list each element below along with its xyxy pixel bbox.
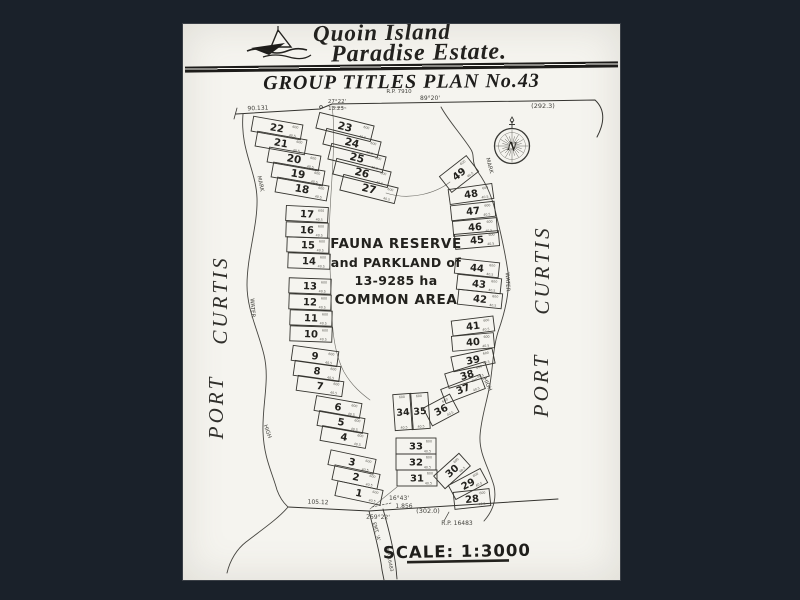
lot-number: 42 bbox=[472, 294, 487, 306]
dimension-label: 40.5 bbox=[316, 217, 323, 221]
scale-label: SCALE: 1:3000 bbox=[383, 541, 531, 563]
dimension-label: 600 bbox=[296, 140, 303, 145]
dimension-label: 40.5 bbox=[424, 466, 431, 470]
dimension-label: 600 bbox=[486, 219, 492, 224]
dimension-label: 600 bbox=[354, 418, 361, 423]
dimension-label: 600 bbox=[399, 395, 405, 399]
dimension-label: 600 bbox=[292, 125, 299, 130]
lot: 660040.5 bbox=[314, 396, 362, 419]
lot-number: 13 bbox=[303, 281, 317, 292]
dimension-label: 600 bbox=[321, 296, 327, 300]
measurement-label: 13.23 bbox=[328, 106, 344, 112]
dimension-label: 40.5 bbox=[487, 242, 494, 247]
dimension-label: 40.5 bbox=[458, 466, 466, 474]
dimension-label: 40.5 bbox=[482, 327, 490, 332]
lot-number: 3 bbox=[347, 457, 356, 469]
measurement-label: WATER bbox=[504, 272, 511, 292]
lot: 3360040.5 bbox=[396, 438, 436, 454]
lot: 460040.5 bbox=[320, 426, 368, 449]
dimension-label: 600 bbox=[321, 280, 327, 284]
dimension-label: 600 bbox=[369, 474, 376, 479]
lot: 560040.5 bbox=[317, 411, 365, 434]
lot: 4260040.5 bbox=[457, 289, 502, 309]
dimension-label: 600 bbox=[320, 255, 326, 259]
lots-layer: 160040.5260040.5360040.5460040.5560040.5… bbox=[251, 112, 503, 509]
measurement-label: 90.131 bbox=[247, 105, 268, 113]
lot-number: 7 bbox=[316, 381, 324, 393]
lot-number: 8 bbox=[313, 366, 321, 378]
lot-number: 19 bbox=[290, 167, 306, 181]
measurement-label: (292.3) bbox=[531, 102, 555, 110]
lot-number: 46 bbox=[468, 222, 483, 234]
lot: 4960040.5 bbox=[439, 156, 478, 193]
dimension-label: 600 bbox=[375, 156, 382, 161]
dimension-label: 600 bbox=[318, 209, 324, 213]
dimension-label: 600 bbox=[314, 171, 321, 176]
lot: 2860040.5 bbox=[453, 489, 491, 510]
compass-finial-icon bbox=[509, 117, 515, 129]
measurement-label: R.P. 16483 bbox=[441, 520, 473, 527]
dimension-label: 600 bbox=[370, 141, 377, 146]
dimension-label: 600 bbox=[482, 186, 489, 191]
lot: 3260040.5 bbox=[396, 454, 436, 470]
lot: 1060040.5 bbox=[290, 326, 332, 342]
dimension-label: 600 bbox=[357, 433, 364, 438]
lot: 1460040.5 bbox=[288, 253, 330, 269]
lot: 1660040.5 bbox=[286, 222, 328, 238]
lot-number: 4 bbox=[339, 432, 348, 444]
dimension-label: 40.5 bbox=[485, 229, 492, 234]
port-curtis-left-word1: PORT bbox=[204, 375, 228, 441]
lot-number: 45 bbox=[470, 235, 485, 247]
measurement-label: 105.12 bbox=[307, 499, 328, 507]
dimension-label: 40.5 bbox=[482, 344, 489, 349]
lot-number: 10 bbox=[304, 329, 318, 340]
lot-number: 44 bbox=[469, 263, 484, 275]
lot-number: 11 bbox=[304, 313, 318, 324]
dimension-label: 600 bbox=[427, 472, 433, 476]
dimension-label: 40.5 bbox=[488, 288, 495, 293]
lot-number: 37 bbox=[455, 382, 472, 397]
measurement-label: 89°20' bbox=[420, 95, 440, 102]
road-line bbox=[329, 106, 370, 400]
lot: 1560040.5 bbox=[287, 237, 329, 253]
lot-number: 43 bbox=[471, 279, 486, 291]
measurement-label: 27°22' bbox=[328, 99, 346, 105]
port-curtis-right-word2: CURTIS bbox=[530, 225, 554, 314]
dimension-label: 40.5 bbox=[424, 450, 431, 454]
dimension-label: 600 bbox=[492, 294, 498, 299]
lot-number: 40 bbox=[466, 337, 481, 349]
dimension-label: 600 bbox=[491, 279, 497, 284]
dimension-label: 600 bbox=[387, 187, 394, 192]
lot-number: 18 bbox=[294, 182, 310, 196]
lot: 3160040.5 bbox=[397, 470, 437, 486]
screenshot-root: Quoin Island Paradise Estate. GROUP TITL… bbox=[0, 0, 800, 600]
survey-plan-drawing: N 160040.5260040.5360040.5460040.5560040… bbox=[0, 0, 800, 600]
dimension-label: 600 bbox=[322, 312, 328, 316]
dimension-label: 600 bbox=[484, 203, 490, 208]
fauna-reserve-label: FAUNA RESERVE and PARKLAND of 13-9285 ha… bbox=[330, 236, 462, 308]
lot-number: 14 bbox=[302, 256, 316, 267]
dimension-label: 600 bbox=[322, 328, 328, 332]
measurement-label: (302.0) bbox=[416, 507, 440, 515]
lot: 1760040.5 bbox=[286, 205, 329, 222]
lot-number: 16 bbox=[300, 225, 314, 236]
measurement-label: 259°22' bbox=[366, 514, 390, 521]
dimension-label: 40.5 bbox=[318, 264, 325, 268]
lot-number: 15 bbox=[301, 240, 315, 251]
lot-number: 31 bbox=[410, 473, 424, 484]
lot: 1260040.5 bbox=[289, 294, 331, 310]
lot-number: 41 bbox=[466, 321, 481, 334]
lot-number: 33 bbox=[409, 441, 423, 452]
lot-number: 32 bbox=[409, 457, 423, 468]
lot-number: 2 bbox=[351, 472, 360, 484]
dimension-label: 40.5 bbox=[319, 305, 326, 309]
dimension-label: 600 bbox=[333, 382, 340, 387]
measurement-label: MARK bbox=[484, 157, 494, 174]
dimension-label: 600 bbox=[426, 440, 432, 444]
lot: 960040.5 bbox=[291, 345, 339, 366]
dimension-label: 40.5 bbox=[400, 425, 407, 429]
dimension-label: 40.5 bbox=[317, 248, 324, 252]
dimension-label: 40.5 bbox=[478, 502, 485, 507]
dimension-label: 40.5 bbox=[320, 337, 327, 341]
compass-rose: N bbox=[495, 117, 530, 164]
dimension-label: 600 bbox=[479, 491, 485, 496]
survey-mark-circle bbox=[320, 106, 323, 109]
dimension-label: 40.5 bbox=[320, 321, 327, 325]
reserve-line-1: FAUNA RESERVE bbox=[330, 236, 462, 252]
lot-number: 9 bbox=[311, 351, 319, 363]
reserve-line-2: and PARKLAND of bbox=[331, 255, 462, 270]
lot: 3960040.5 bbox=[451, 348, 495, 371]
dimension-label: 600 bbox=[318, 224, 324, 228]
dimension-label: 40.5 bbox=[489, 303, 496, 308]
dimension-label: 600 bbox=[330, 367, 337, 372]
lot: 360040.5 bbox=[328, 450, 376, 474]
lot-number: 34 bbox=[396, 407, 410, 419]
lot: 1360040.5 bbox=[289, 278, 331, 294]
lot-number: 28 bbox=[465, 494, 480, 506]
lot-number: 5 bbox=[336, 417, 345, 429]
dimension-label: 600 bbox=[416, 394, 422, 398]
lot: 1160040.5 bbox=[290, 310, 332, 326]
reserve-line-4: COMMON AREA bbox=[335, 292, 458, 308]
right-shoreline bbox=[441, 107, 508, 521]
lot-number: 48 bbox=[463, 188, 478, 201]
dimension-label: 40.5 bbox=[486, 272, 493, 277]
dimension-label: 600 bbox=[365, 459, 372, 464]
dimension-label: 600 bbox=[489, 263, 495, 268]
dimension-label: 40.5 bbox=[425, 482, 432, 486]
dimension-label: 600 bbox=[482, 351, 489, 356]
lot-number: 17 bbox=[300, 209, 315, 221]
dimension-label: 600 bbox=[483, 318, 490, 323]
lot: 260040.5 bbox=[332, 465, 380, 489]
dimension-label: 600 bbox=[318, 186, 325, 191]
dimension-label: 40.5 bbox=[316, 233, 323, 237]
lot-number: 47 bbox=[466, 206, 481, 218]
measurement-label: R.P. 7910 bbox=[386, 89, 412, 95]
dimension-label: 600 bbox=[426, 456, 432, 460]
dimension-label: 600 bbox=[363, 125, 370, 130]
dimension-label: 600 bbox=[351, 403, 358, 408]
port-curtis-right-word1: PORT bbox=[529, 353, 553, 419]
dimension-label: 600 bbox=[328, 352, 335, 357]
dimension-label: 600 bbox=[380, 171, 387, 176]
dimension-label: 600 bbox=[310, 156, 317, 161]
port-curtis-left-word2: CURTIS bbox=[208, 255, 232, 344]
measurement-label: 1.856 bbox=[395, 503, 412, 510]
measurement-label: 16°43' bbox=[389, 495, 409, 502]
lot-number: 27 bbox=[360, 182, 377, 197]
reserve-line-3: 13-9285 ha bbox=[354, 273, 437, 288]
lot: 160040.5 bbox=[335, 481, 383, 505]
compass-north-label: N bbox=[505, 138, 518, 154]
dimension-label: 40.5 bbox=[417, 424, 424, 428]
lot: 4860040.5 bbox=[448, 184, 494, 205]
dimension-label: 40.5 bbox=[319, 289, 326, 293]
measurement-label: WATER bbox=[248, 298, 255, 318]
lot-number: 1 bbox=[354, 488, 363, 500]
road-line bbox=[386, 182, 450, 196]
lot-number: 6 bbox=[333, 402, 342, 414]
dimension-label: 600 bbox=[319, 239, 325, 243]
measurement-label: EMT. 'A' bbox=[371, 522, 382, 542]
lot: 2260040.5 bbox=[251, 116, 303, 139]
dimension-label: 600 bbox=[372, 490, 379, 495]
lot-number: 12 bbox=[303, 297, 317, 308]
measurement-label: MARK bbox=[255, 175, 264, 192]
dimension-label: 40.5 bbox=[483, 212, 490, 217]
dimension-label: 600 bbox=[483, 335, 489, 340]
